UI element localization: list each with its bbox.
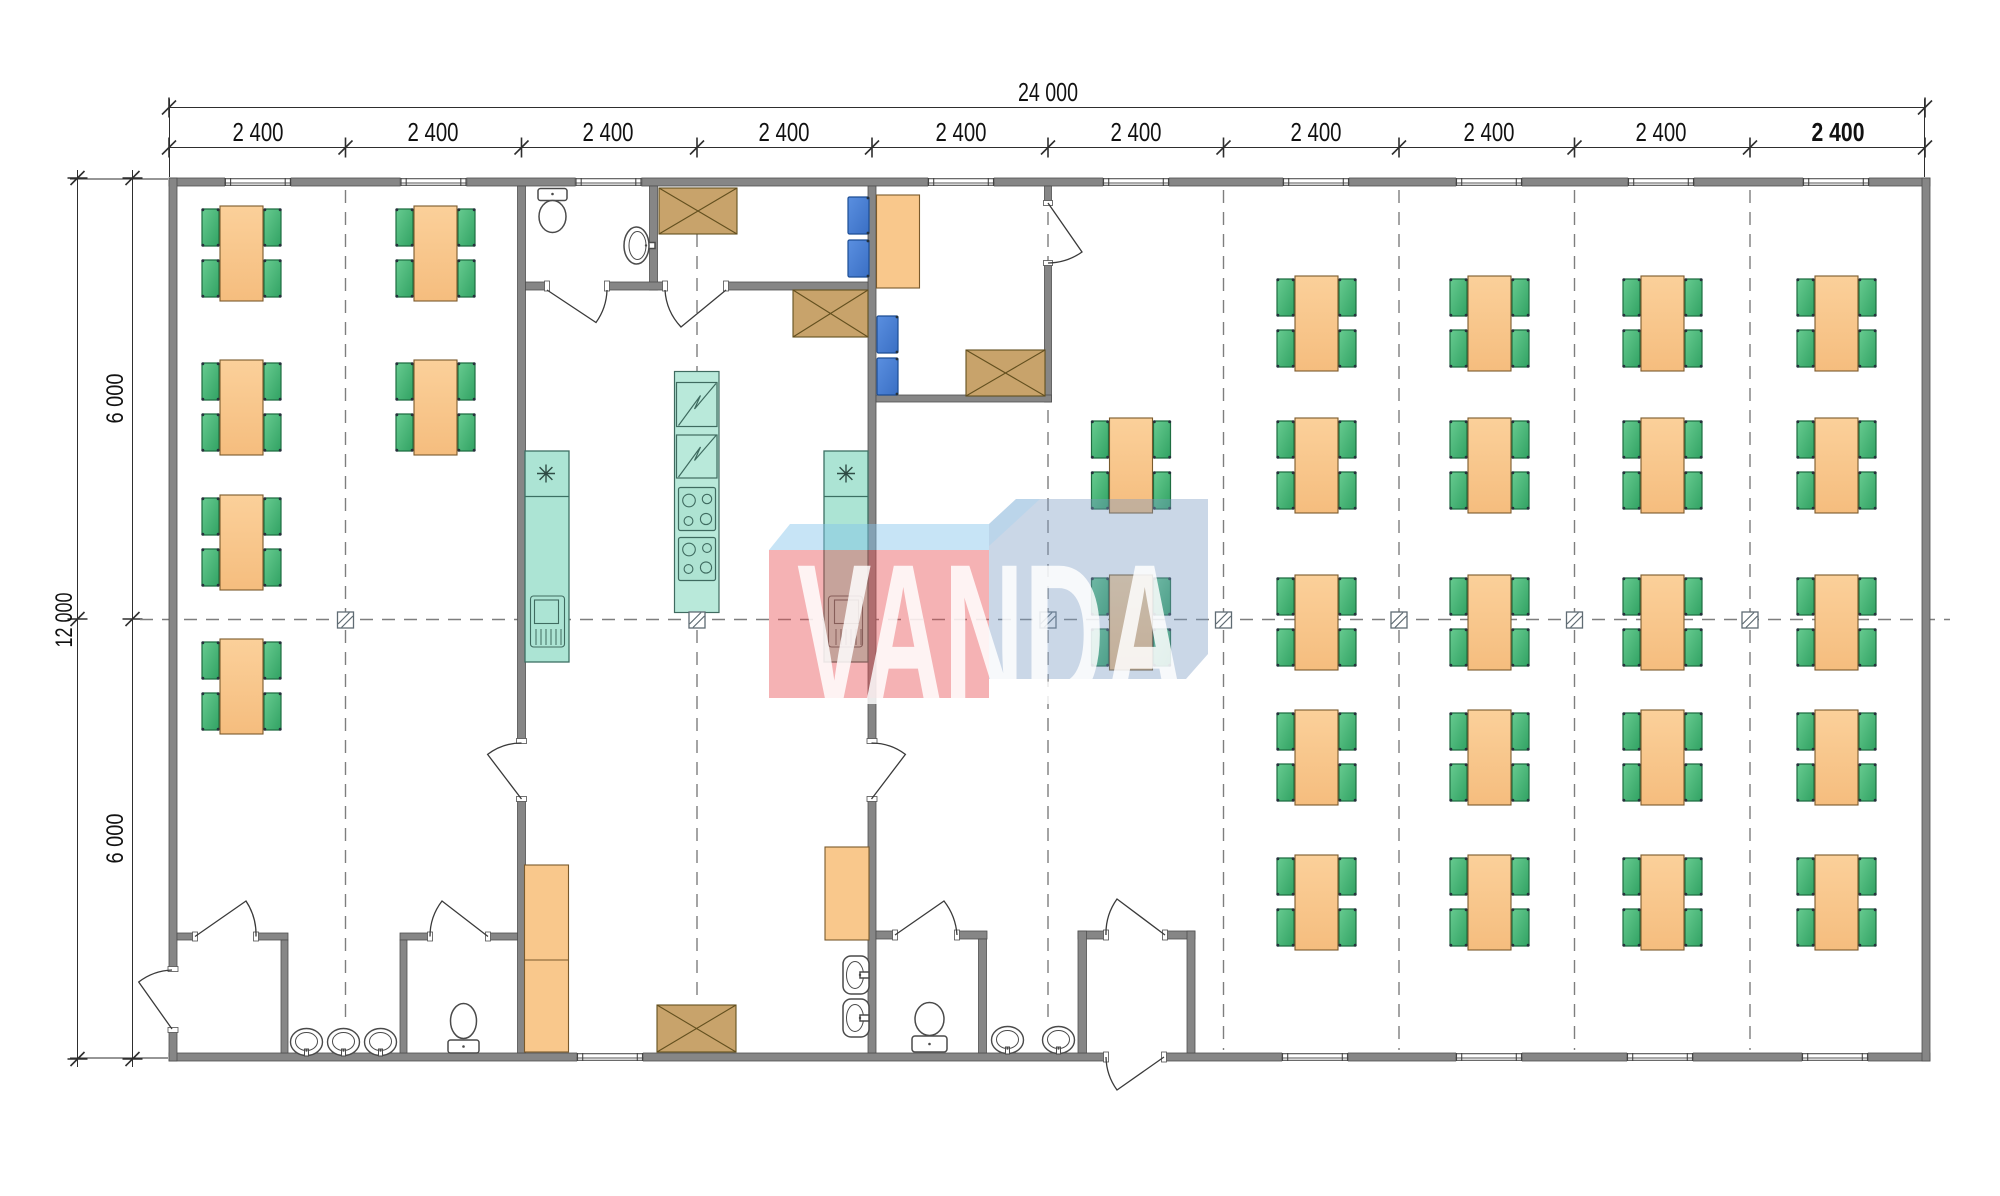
svg-text:24 000: 24 000 bbox=[1018, 77, 1078, 107]
svg-text:6 000: 6 000 bbox=[102, 374, 129, 424]
svg-text:12 000: 12 000 bbox=[51, 593, 78, 648]
svg-text:2 400: 2 400 bbox=[1291, 117, 1342, 147]
svg-text:2 400: 2 400 bbox=[1636, 117, 1687, 147]
svg-text:2 400: 2 400 bbox=[1111, 117, 1162, 147]
svg-text:6 000: 6 000 bbox=[102, 814, 129, 864]
svg-text:2 400: 2 400 bbox=[1464, 117, 1515, 147]
svg-text:VANDA: VANDA bbox=[797, 522, 1185, 747]
svg-text:2 400: 2 400 bbox=[936, 117, 987, 147]
svg-text:2 400: 2 400 bbox=[233, 117, 284, 147]
svg-text:2 400: 2 400 bbox=[583, 117, 634, 147]
svg-text:2 400: 2 400 bbox=[408, 117, 459, 147]
svg-text:2 400: 2 400 bbox=[759, 117, 810, 147]
svg-text:2 400: 2 400 bbox=[1812, 117, 1865, 147]
